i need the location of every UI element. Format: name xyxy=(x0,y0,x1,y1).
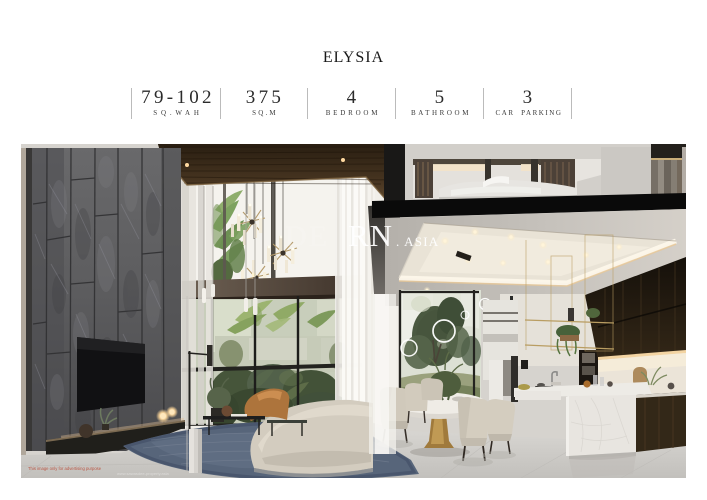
svg-text:This image only for advertisin: This image only for advertising purpose xyxy=(28,466,102,471)
svg-text:www.sawasdee-property.asia: www.sawasdee-property.asia xyxy=(117,471,170,476)
svg-text:. ASIA: . ASIA xyxy=(396,234,439,249)
svg-text:DE: DE xyxy=(285,220,329,253)
svg-text:RN: RN xyxy=(348,218,393,253)
